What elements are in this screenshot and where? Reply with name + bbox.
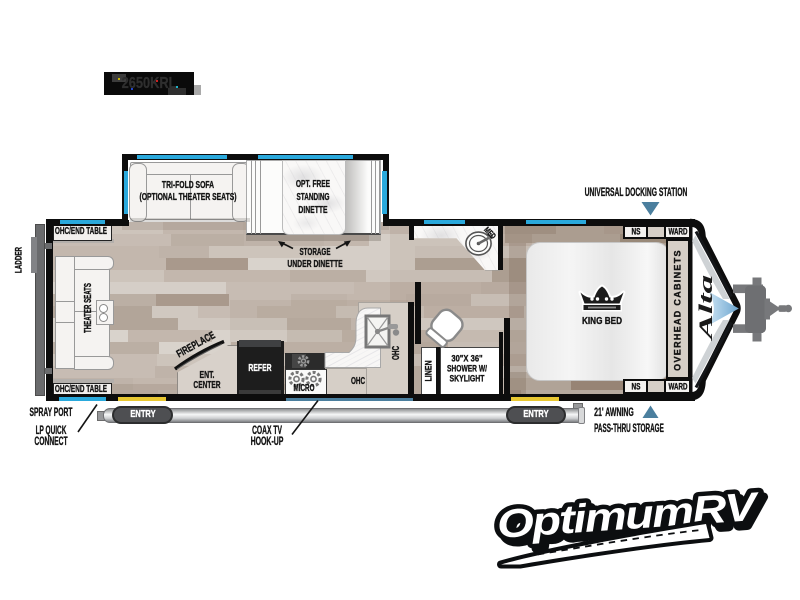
svg-text:Alta: Alta <box>696 274 716 341</box>
